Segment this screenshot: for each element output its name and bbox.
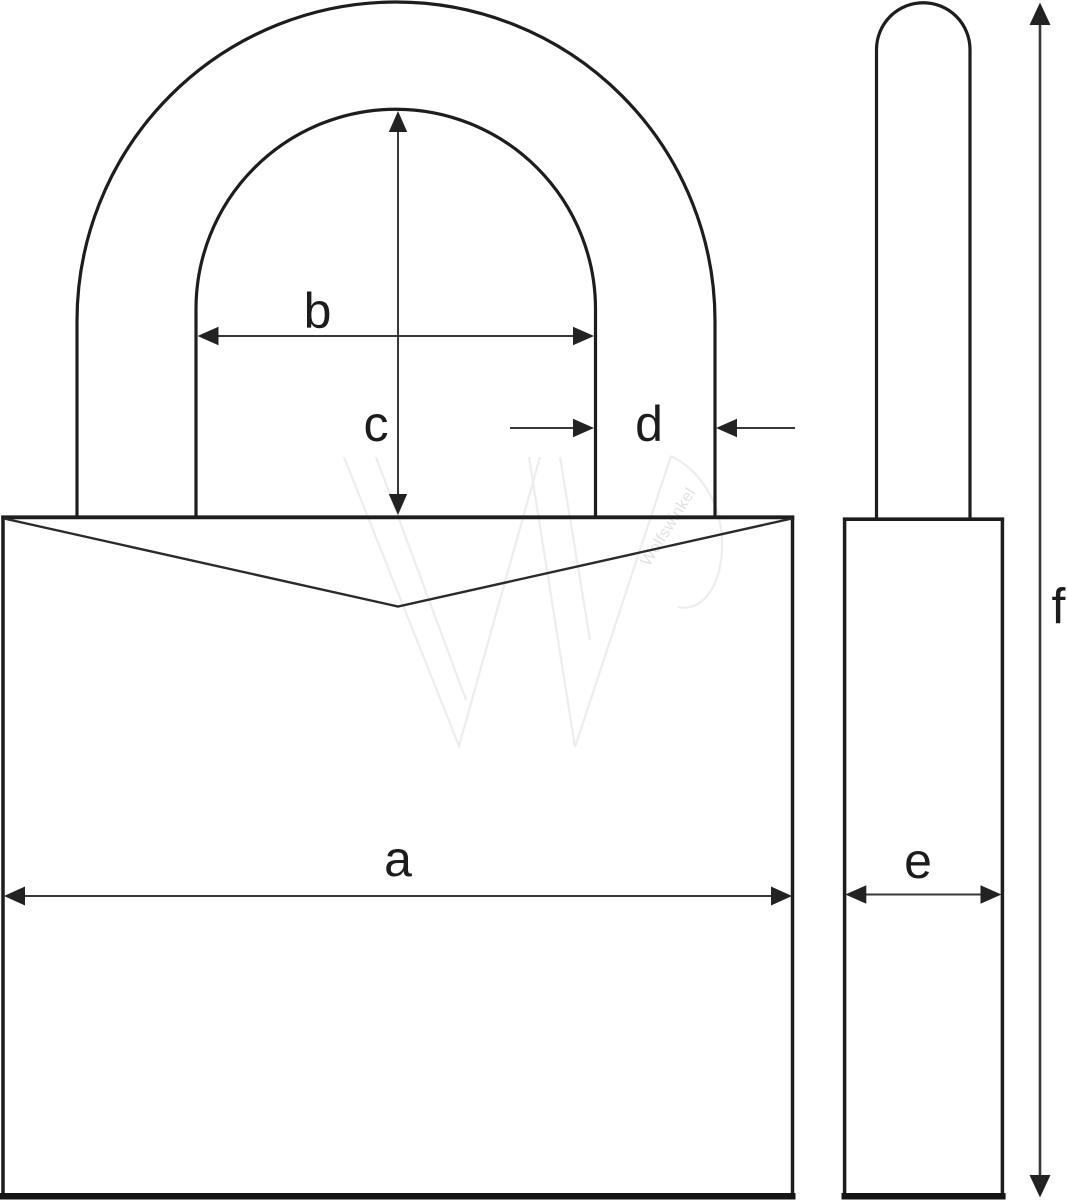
svg-text:c: c [364,396,389,452]
svg-text:e: e [904,833,932,889]
svg-text:d: d [635,396,663,452]
svg-text:f: f [1052,579,1066,635]
svg-text:a: a [384,831,412,887]
svg-text:b: b [304,283,332,339]
